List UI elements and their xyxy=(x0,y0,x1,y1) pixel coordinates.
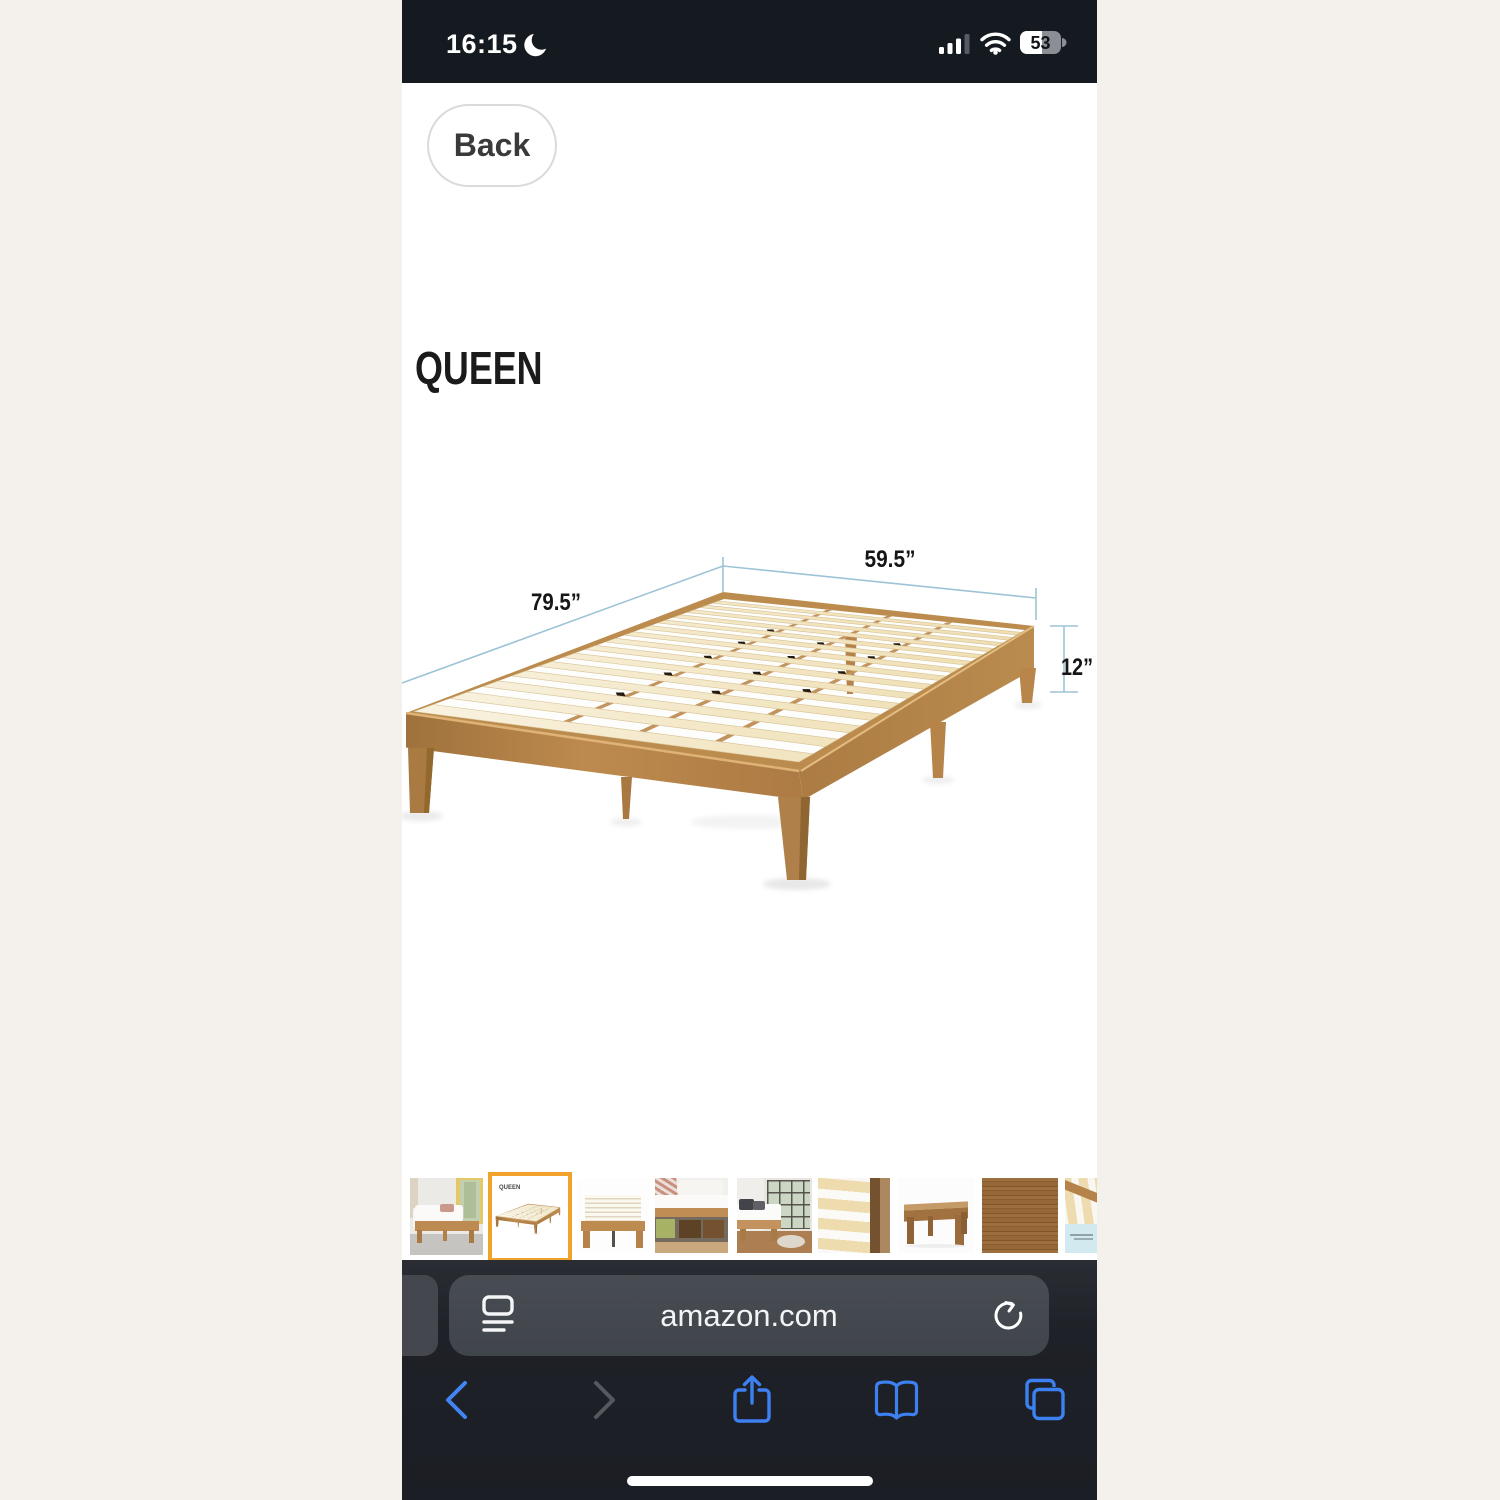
svg-text:79.5”: 79.5” xyxy=(531,589,581,616)
svg-text:59.5”: 59.5” xyxy=(865,546,916,573)
svg-text:12”: 12” xyxy=(1061,654,1093,681)
